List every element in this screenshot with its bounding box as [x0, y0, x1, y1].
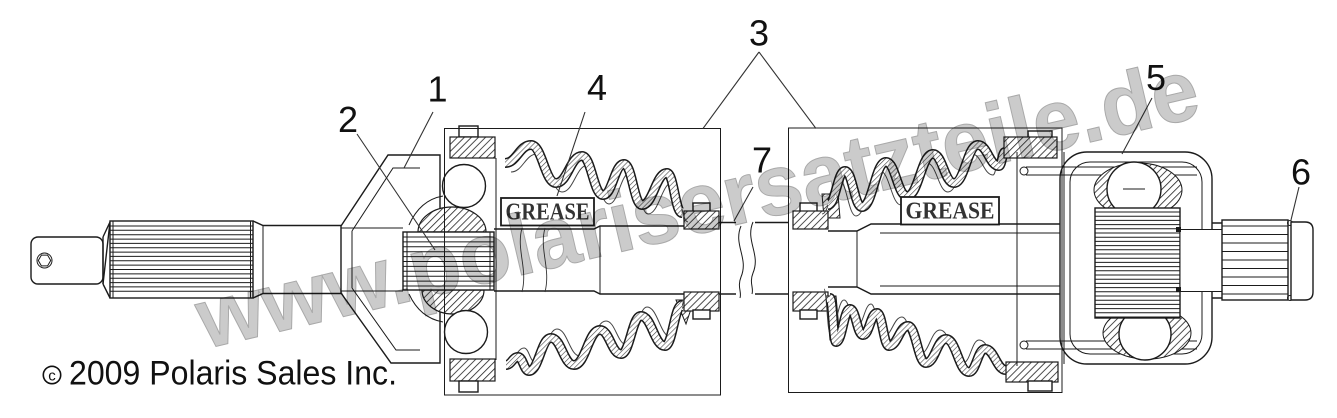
- svg-text:6: 6: [1291, 152, 1311, 193]
- svg-text:2: 2: [338, 99, 358, 140]
- svg-text:c: c: [48, 368, 56, 385]
- svg-text:1: 1: [427, 69, 447, 110]
- svg-text:3: 3: [749, 13, 769, 54]
- svg-text:GREASE: GREASE: [906, 199, 995, 225]
- svg-text:4: 4: [587, 67, 607, 108]
